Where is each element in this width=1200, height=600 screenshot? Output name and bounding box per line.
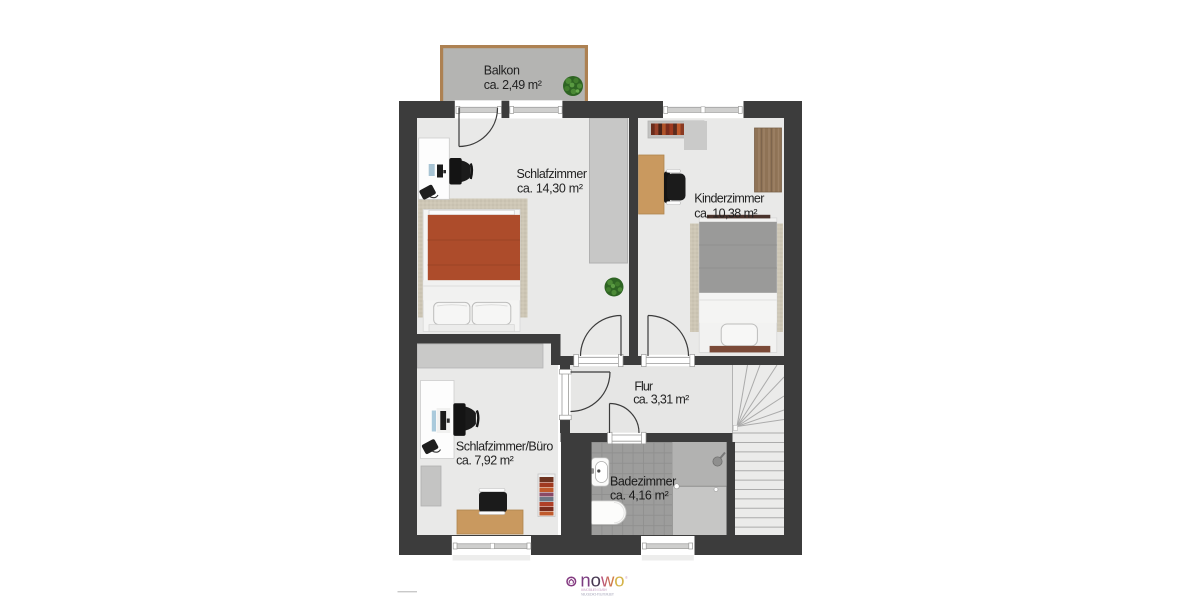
svg-text:ca. 4,16 m²: ca. 4,16 m² (610, 489, 669, 503)
svg-text:ca. 7,92 m²: ca. 7,92 m² (456, 454, 514, 468)
svg-text:IMMOBILIEN GMBH: IMMOBILIEN GMBH (581, 588, 608, 592)
svg-text:ca. 10,38 m²: ca. 10,38 m² (694, 207, 757, 221)
svg-text:Balkon: Balkon (484, 64, 520, 78)
svg-text:Kinderzimmer: Kinderzimmer (694, 192, 764, 206)
svg-text:Schlafzimmer/Büro: Schlafzimmer/Büro (456, 440, 553, 454)
svg-text:Flur: Flur (634, 380, 653, 394)
svg-text:ca. 2,49 m²: ca. 2,49 m² (484, 78, 542, 92)
svg-text:Badezimmer: Badezimmer (610, 475, 676, 489)
svg-text:NEU GEDACHT GUT ERLEBT: NEU GEDACHT GUT ERLEBT (581, 592, 614, 596)
svg-text:Schlafzimmer: Schlafzimmer (517, 167, 588, 181)
svg-text:ca. 3,31 m²: ca. 3,31 m² (633, 393, 689, 407)
svg-text:®: ® (625, 576, 628, 580)
svg-text:ca. 14,30 m²: ca. 14,30 m² (517, 182, 583, 196)
